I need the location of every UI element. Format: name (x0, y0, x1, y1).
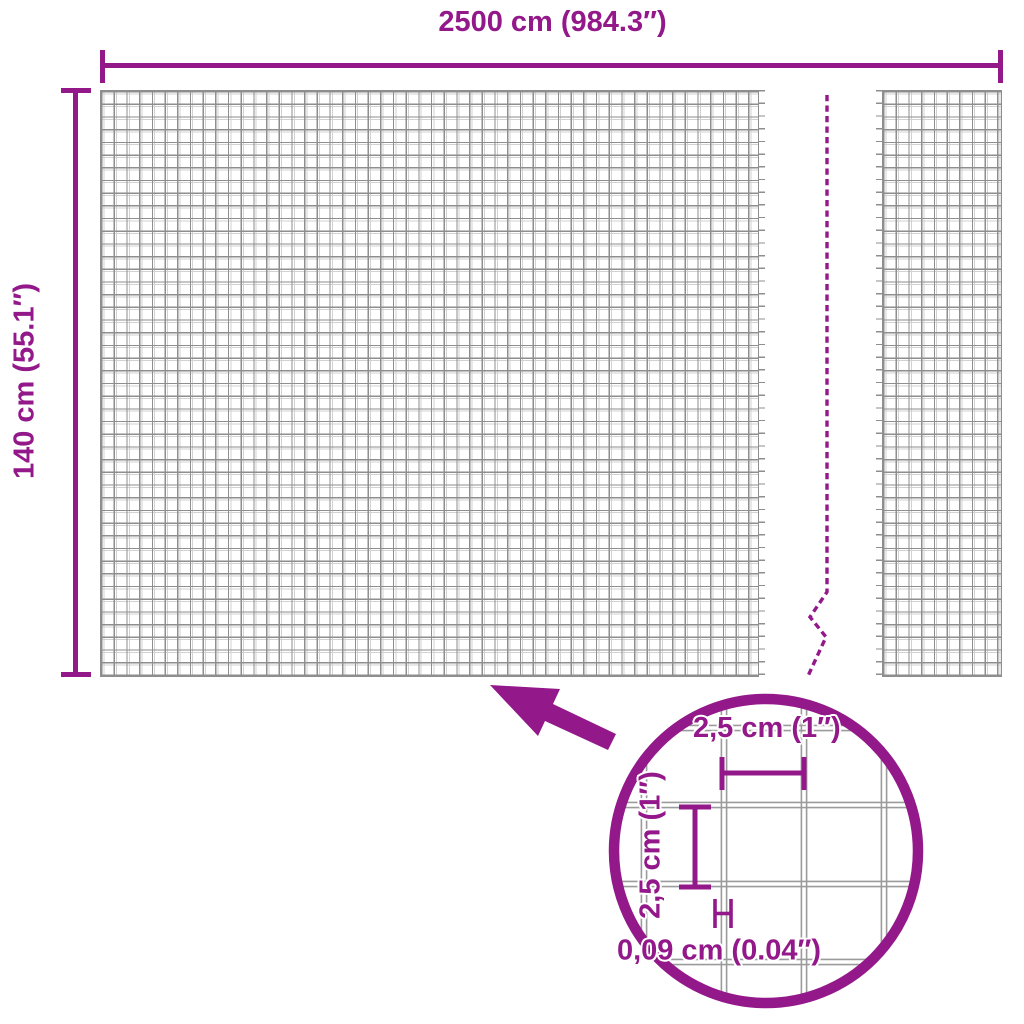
mesh-break-line (808, 95, 827, 676)
wire-thickness-marker (715, 899, 731, 928)
detail-cell-width-label: 2,5 cm (1″) (693, 712, 839, 745)
detail-width-dimension (722, 757, 804, 790)
detail-height-dimension (679, 807, 711, 887)
detail-cell-height-label: 2,5 cm (1″) (635, 771, 668, 919)
zoom-arrow-icon (490, 685, 616, 750)
wire-thickness-label: 0,09 cm (0.04″) (617, 935, 821, 968)
diagram-overlay (0, 0, 1024, 1024)
product-dimension-diagram: 2500 cm (984.3″) 140 cm (55.1″) (0, 0, 1024, 1024)
